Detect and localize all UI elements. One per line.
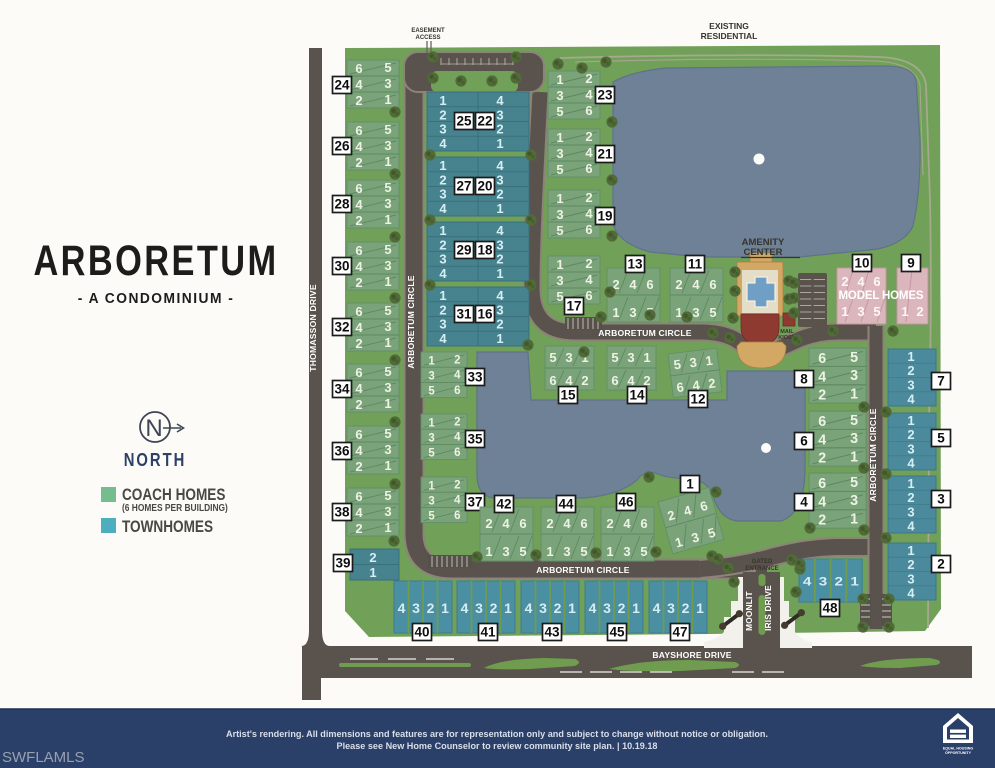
svg-text:20: 20 (477, 179, 492, 194)
svg-text:BAYSHORE DRIVE: BAYSHORE DRIVE (652, 650, 731, 660)
svg-text:11: 11 (688, 257, 703, 272)
svg-text:33: 33 (467, 370, 483, 385)
svg-text:26: 26 (334, 139, 350, 154)
svg-text:47: 47 (672, 625, 687, 640)
svg-text:41: 41 (480, 625, 496, 640)
svg-text:Artist's rendering. All dimens: Artist's rendering. All dimensions and f… (226, 729, 768, 739)
svg-text:IRIS DRIVE: IRIS DRIVE (763, 585, 773, 631)
svg-text:9: 9 (907, 256, 915, 271)
svg-text:40: 40 (414, 625, 429, 640)
svg-text:6: 6 (800, 434, 808, 449)
svg-text:Please see New Home Counselor: Please see New Home Counselor to review … (337, 741, 658, 751)
svg-text:N: N (145, 415, 162, 442)
svg-text:2: 2 (369, 550, 376, 565)
svg-text:6: 6 (873, 274, 880, 289)
svg-text:14: 14 (629, 388, 645, 403)
svg-text:1: 1 (369, 565, 376, 580)
svg-text:GATED: GATED (752, 559, 773, 565)
svg-text:TOWNHOMES: TOWNHOMES (122, 518, 213, 537)
svg-text:42: 42 (496, 497, 511, 512)
svg-text:1: 1 (841, 304, 848, 319)
svg-text:35: 35 (467, 432, 483, 447)
svg-text:10: 10 (854, 256, 869, 271)
svg-text:- A CONDOMINIUM -: - A CONDOMINIUM - (78, 291, 235, 308)
svg-text:ARBORETUM CIRCLE: ARBORETUM CIRCLE (536, 565, 629, 575)
svg-text:SWFLAMLS: SWFLAMLS (2, 749, 85, 766)
svg-text:18: 18 (477, 243, 493, 258)
svg-text:5: 5 (873, 304, 880, 319)
svg-text:13: 13 (627, 257, 643, 272)
svg-text:44: 44 (558, 497, 574, 512)
svg-text:19: 19 (597, 209, 612, 224)
svg-text:EASEMENT: EASEMENT (411, 28, 445, 34)
svg-text:MODEL HOMES: MODEL HOMES (839, 290, 924, 302)
svg-text:36: 36 (334, 444, 350, 459)
svg-text:27: 27 (456, 179, 471, 194)
svg-text:5: 5 (937, 431, 945, 446)
svg-text:EXISTING: EXISTING (709, 21, 749, 31)
svg-text:NORTH: NORTH (124, 449, 187, 470)
svg-text:7: 7 (937, 374, 945, 389)
svg-text:(6 HOMES PER BUILDING): (6 HOMES PER BUILDING) (122, 502, 228, 514)
svg-text:22: 22 (477, 114, 492, 129)
svg-text:4: 4 (857, 274, 865, 289)
svg-text:ARBORETUM: ARBORETUM (33, 237, 278, 284)
svg-text:16: 16 (477, 307, 493, 322)
svg-text:29: 29 (456, 243, 471, 258)
svg-text:ARBORETUM CIRCLE: ARBORETUM CIRCLE (406, 275, 416, 368)
svg-text:21: 21 (597, 147, 613, 162)
svg-text:MOONLIT: MOONLIT (744, 591, 754, 631)
svg-text:CENTER: CENTER (743, 247, 782, 258)
svg-text:ARBORETUM CIRCLE: ARBORETUM CIRCLE (868, 408, 878, 501)
svg-text:48: 48 (822, 601, 838, 616)
svg-text:2: 2 (937, 557, 945, 572)
svg-text:34: 34 (334, 382, 350, 397)
svg-text:45: 45 (609, 625, 625, 640)
svg-text:ARBORETUM CIRCLE: ARBORETUM CIRCLE (598, 328, 691, 338)
svg-text:24: 24 (334, 78, 350, 93)
svg-text:3: 3 (937, 492, 945, 507)
svg-text:32: 32 (334, 320, 349, 335)
svg-text:43: 43 (544, 625, 560, 640)
svg-text:23: 23 (597, 88, 613, 103)
svg-text:3: 3 (857, 304, 864, 319)
svg-text:30: 30 (334, 259, 349, 274)
svg-text:1: 1 (901, 304, 908, 319)
svg-text:THOMASSON DRIVE: THOMASSON DRIVE (308, 284, 318, 372)
svg-text:2: 2 (916, 304, 923, 319)
svg-text:4: 4 (800, 495, 808, 510)
svg-text:17: 17 (566, 299, 581, 314)
svg-text:25: 25 (456, 114, 472, 129)
svg-text:ACCESS: ACCESS (415, 35, 440, 41)
svg-text:12: 12 (690, 392, 705, 407)
svg-text:8: 8 (800, 372, 808, 387)
svg-text:38: 38 (334, 505, 350, 520)
svg-text:2: 2 (841, 274, 848, 289)
svg-text:OPPORTUNITY: OPPORTUNITY (945, 751, 972, 755)
svg-text:15: 15 (560, 388, 576, 403)
svg-text:31: 31 (456, 307, 472, 322)
svg-text:28: 28 (334, 197, 350, 212)
svg-text:RESIDENTIAL: RESIDENTIAL (701, 31, 758, 41)
svg-text:46: 46 (618, 495, 634, 510)
svg-text:ENTRANCE: ENTRANCE (745, 566, 778, 572)
svg-text:39: 39 (335, 556, 350, 571)
svg-text:1: 1 (686, 477, 694, 492)
